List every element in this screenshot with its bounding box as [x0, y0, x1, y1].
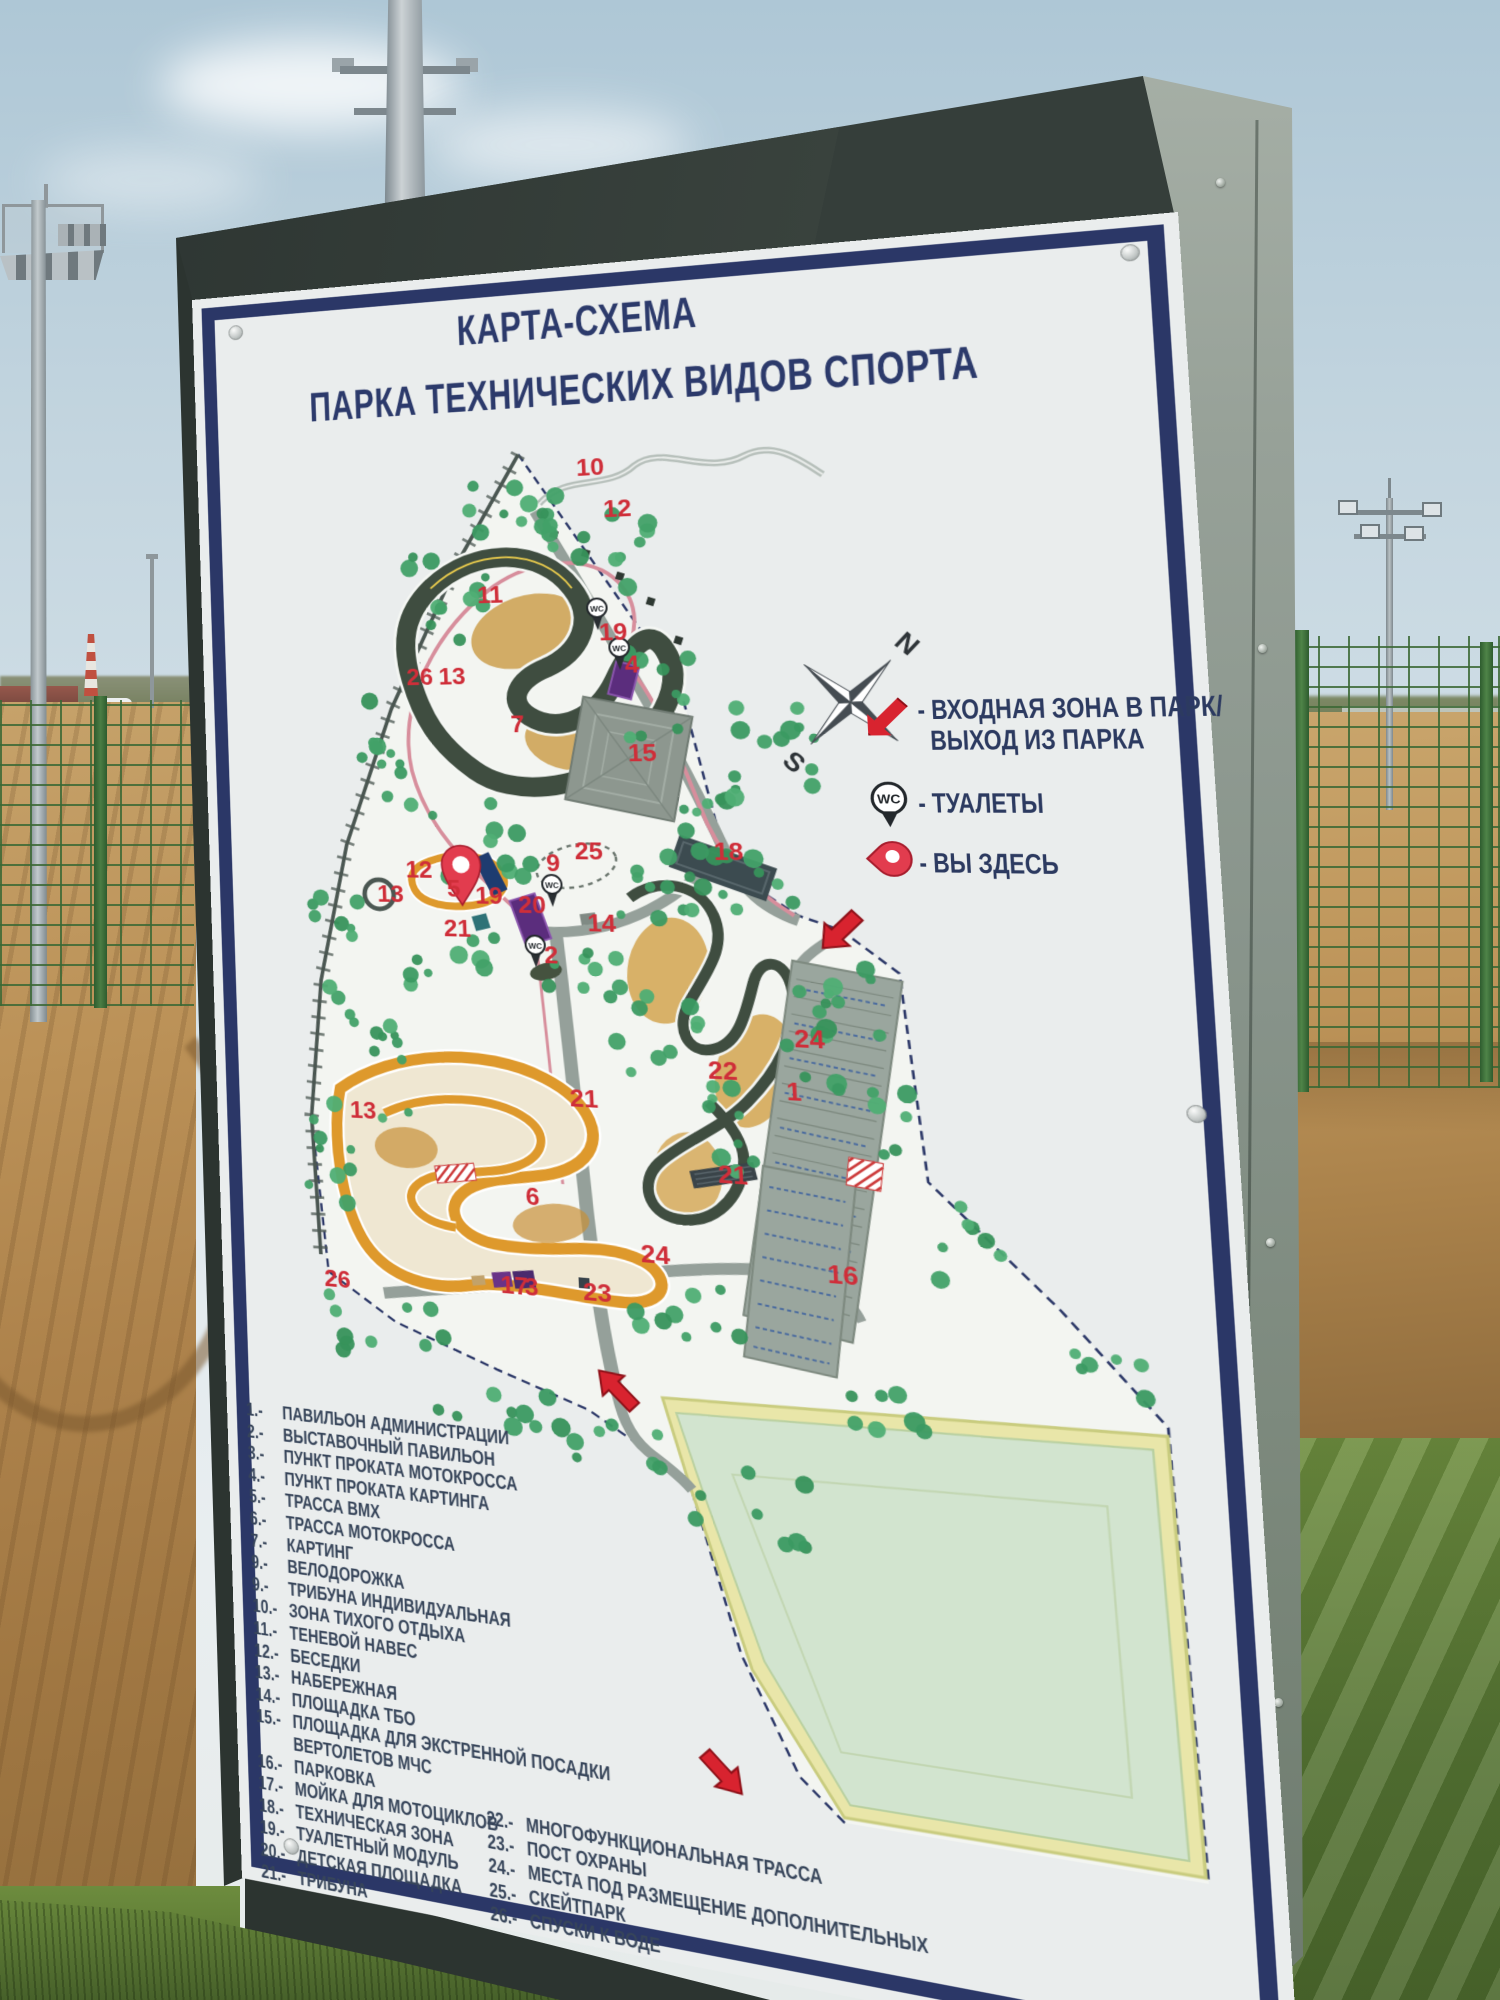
- map-number-7: 7: [510, 710, 525, 738]
- svg-text:WC: WC: [590, 605, 604, 613]
- map-number-13: 13: [377, 880, 404, 908]
- photo-scene: КАРТА-СХЕМА ПАРКА ТЕХНИЧЕСКИХ ВИДОВ СПОР…: [0, 0, 1500, 2000]
- map-number-3: 3: [524, 1272, 539, 1302]
- map-number-25: 25: [574, 837, 603, 866]
- map-number-19: 19: [475, 881, 503, 910]
- tree-icon: [419, 1338, 432, 1352]
- map-number-23: 23: [582, 1277, 612, 1309]
- tree-icon: [728, 770, 741, 782]
- compass-south: S: [777, 745, 812, 778]
- tree-icon: [432, 1403, 444, 1416]
- map-number-26: 26: [324, 1264, 351, 1294]
- tree-icon: [805, 763, 819, 775]
- tree-icon: [356, 752, 367, 763]
- map-number-22: 22: [707, 1055, 738, 1086]
- map-number-14: 14: [587, 908, 617, 937]
- map-number-2: 2: [544, 940, 559, 969]
- compass-north: N: [889, 626, 926, 661]
- map-number-26: 26: [406, 663, 434, 691]
- map-number-6: 6: [525, 1181, 540, 1211]
- tree-icon: [790, 702, 805, 715]
- legend-entrance: - ВХОДНАЯ ЗОНА В ПАРК/ ВЫХОД ИЗ ПАРКА: [859, 688, 1341, 756]
- map-number-15: 15: [627, 738, 657, 767]
- tree-icon: [771, 878, 784, 890]
- tree-icon: [730, 721, 750, 739]
- you-are-here-icon: [871, 839, 912, 885]
- map-number-13: 13: [349, 1095, 376, 1124]
- tree-icon: [728, 700, 745, 715]
- map-number-24: 24: [640, 1239, 670, 1271]
- entrance-arrow-icon: [849, 685, 922, 752]
- svg-text:WC: WC: [545, 882, 559, 890]
- map-number-24: 24: [793, 1023, 825, 1054]
- tree-icon: [1133, 1358, 1149, 1373]
- map-number-21: 21: [717, 1159, 748, 1191]
- map-number-5: 5: [446, 874, 461, 902]
- tree-icon: [361, 692, 379, 709]
- screw-icon: [1258, 644, 1267, 653]
- map-sign-pylon: КАРТА-СХЕМА ПАРКА ТЕХНИЧЕСКИХ ВИДОВ СПОР…: [0, 0, 1500, 2000]
- legend-entrance-line2: ВЫХОД ИЗ ПАРКА: [918, 723, 1145, 756]
- map-board: КАРТА-СХЕМА ПАРКА ТЕХНИЧЕСКИХ ВИДОВ СПОР…: [192, 212, 1300, 2000]
- map-number-10: 10: [575, 452, 604, 481]
- hatch-square: [846, 1157, 883, 1191]
- map-number-20: 20: [518, 890, 547, 919]
- map-number-19: 19: [598, 617, 628, 646]
- map-number-18: 18: [713, 837, 744, 866]
- tree-icon: [462, 503, 477, 517]
- legend-toilets: WC - ТУАЛЕТЫ: [863, 781, 1090, 826]
- svg-text:WC: WC: [528, 942, 542, 950]
- tree-icon: [400, 559, 418, 577]
- tree-icon: [803, 778, 821, 794]
- map-number-11: 11: [477, 580, 504, 608]
- map-number-12: 12: [602, 493, 632, 522]
- screw-icon: [1216, 178, 1225, 187]
- map-number-16: 16: [827, 1259, 860, 1292]
- map-number-13: 13: [438, 662, 466, 690]
- tree-icon: [1110, 1354, 1122, 1365]
- tree-icon: [757, 735, 773, 749]
- legend-entrance-line1: - ВХОДНАЯ ЗОНА В ПАРК/: [917, 690, 1224, 725]
- hatch-square: [435, 1163, 477, 1183]
- map-number-21: 21: [569, 1083, 599, 1113]
- map-number-21: 21: [443, 914, 471, 943]
- tree-icon: [308, 910, 321, 923]
- map-number-1: 1: [786, 1076, 803, 1107]
- legend-you-are-here: - ВЫ ЗДЕСЬ: [866, 839, 1110, 888]
- tree-icon: [329, 1304, 342, 1318]
- legend-you-are-here-label: - ВЫ ЗДЕСЬ: [919, 847, 1060, 880]
- tree-icon: [365, 1335, 378, 1349]
- screw-icon: [1266, 1238, 1275, 1247]
- tree-icon: [486, 1386, 502, 1403]
- map-number-9: 9: [546, 848, 561, 876]
- tree-icon: [634, 536, 646, 548]
- map-number-4: 4: [624, 650, 640, 679]
- legend-toilets-label: - ТУАЛЕТЫ: [917, 788, 1044, 819]
- tree-icon: [618, 578, 638, 597]
- map-number-12: 12: [405, 855, 433, 883]
- tree-icon: [467, 480, 479, 492]
- wc-marker-icon: WC: [870, 782, 909, 826]
